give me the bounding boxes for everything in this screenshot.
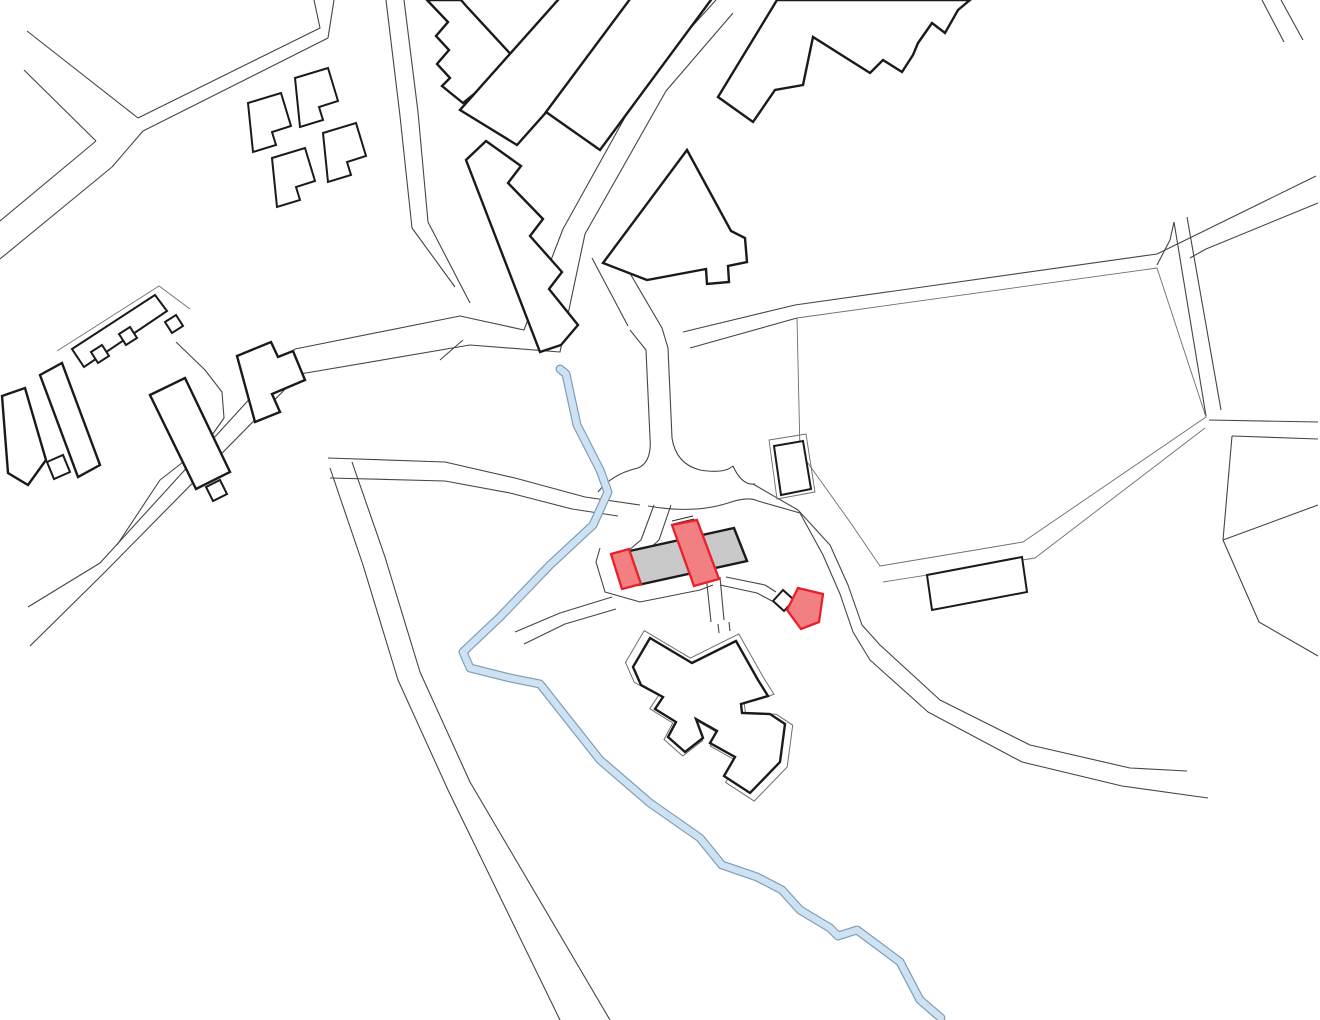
church-building — [633, 638, 785, 793]
tall-building-annex — [47, 455, 70, 479]
edge-building — [2, 388, 46, 485]
field-boundaries — [57, 268, 1206, 582]
long-stepped-block — [466, 141, 578, 352]
cottage — [323, 123, 366, 182]
field-strip-building — [927, 557, 1027, 610]
sports-field-outline — [797, 268, 1206, 566]
terrace-building — [72, 295, 167, 367]
site-buildings — [611, 516, 823, 629]
l-shaped-building — [237, 342, 305, 422]
site-plan-drawing — [0, 0, 1320, 1020]
barn-building — [774, 441, 811, 495]
triangle-building — [603, 150, 747, 284]
site-plan-canvas — [0, 0, 1320, 1020]
cottage — [248, 93, 291, 152]
road-network — [0, 0, 1318, 1020]
tall-building-west — [40, 363, 100, 477]
cottage — [295, 68, 338, 127]
cottage — [272, 148, 315, 207]
highlighted-pavilion-pentagon — [787, 588, 823, 629]
terrace-annex — [165, 315, 183, 333]
church-complex — [626, 631, 793, 802]
context-buildings — [2, 0, 1027, 610]
jagged-building — [718, 0, 970, 122]
